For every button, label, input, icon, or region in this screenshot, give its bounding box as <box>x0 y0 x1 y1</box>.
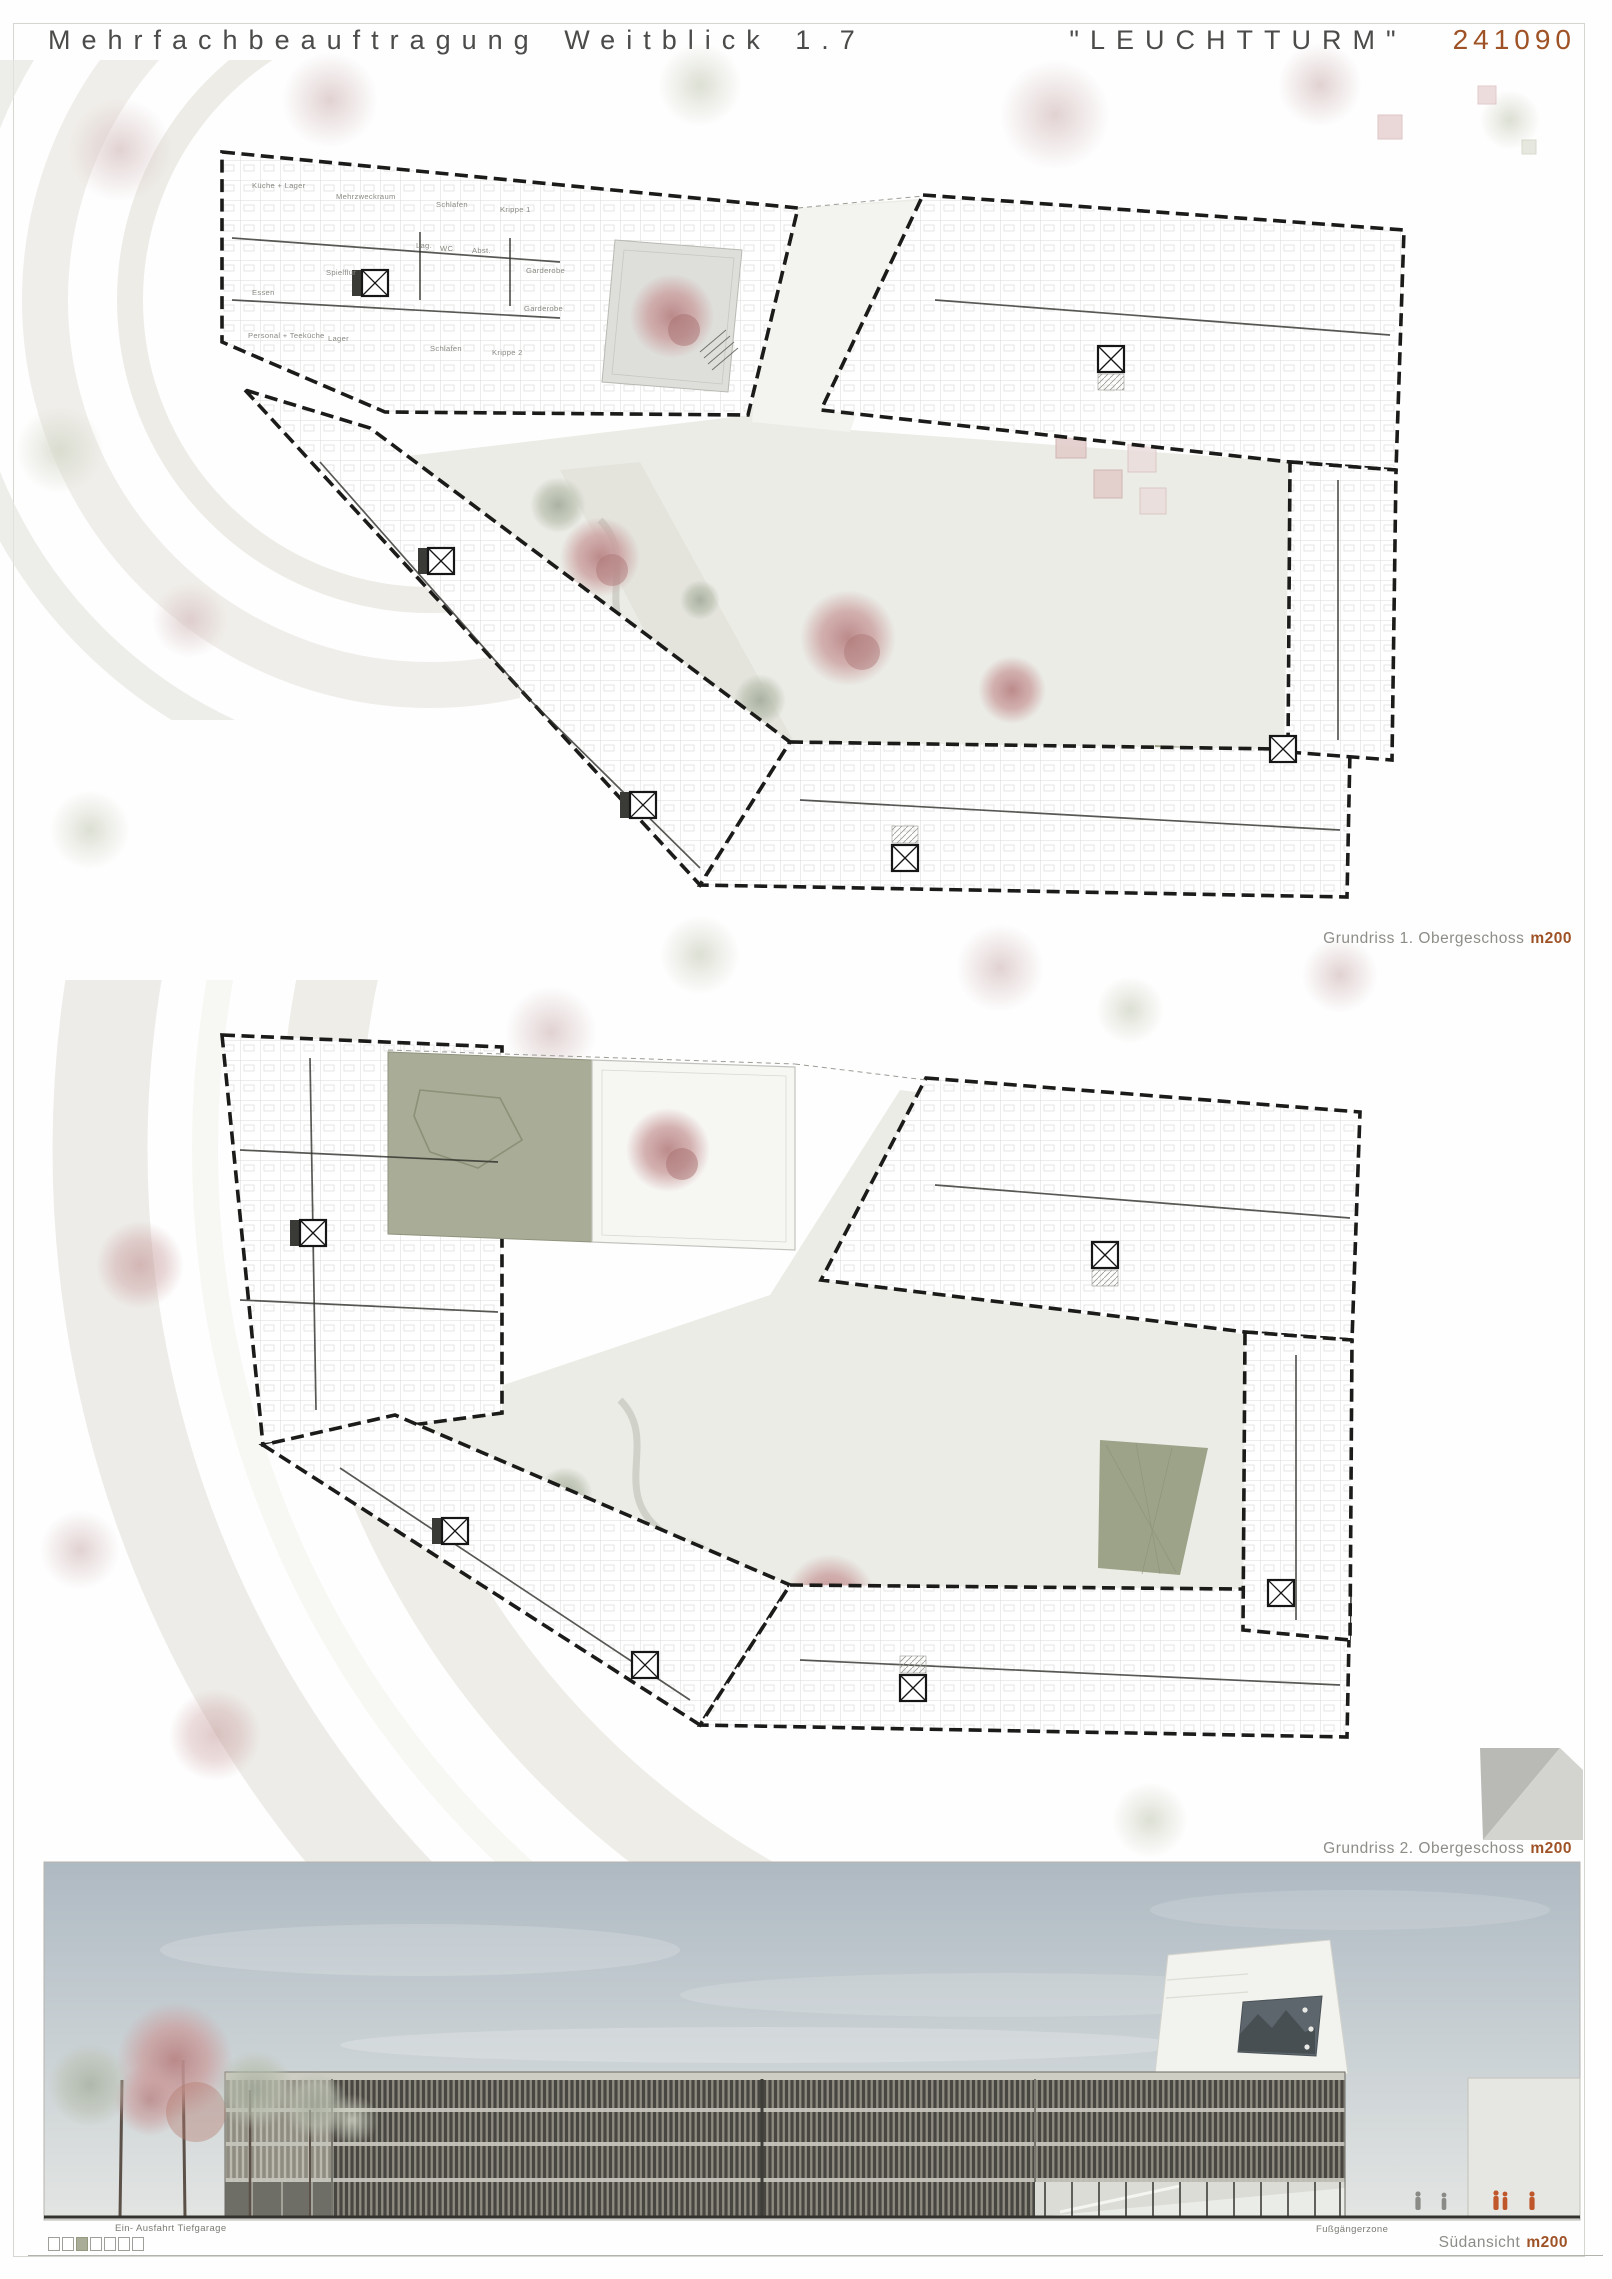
scale-bar-segment <box>90 2237 102 2251</box>
plan2-roof-garden <box>388 1052 795 1250</box>
elevation-drawing <box>44 1862 1580 2220</box>
elevation-tower <box>1155 1940 1348 2074</box>
bottom-rule <box>28 2255 1603 2256</box>
elevation-label-garage: Ein- Ausfahrt Tiefgarage <box>115 2223 227 2234</box>
scale-bar-segment <box>62 2237 74 2251</box>
svg-text:Garderobe: Garderobe <box>524 304 563 313</box>
svg-text:Lager: Lager <box>328 334 349 343</box>
elevation-label-pedestrian: Fußgängerzone <box>1316 2224 1388 2235</box>
svg-text:Garderobe: Garderobe <box>526 266 565 275</box>
elevation-pilotis <box>1035 2182 1345 2217</box>
elevation-scale-label: m200 <box>1526 2234 1568 2251</box>
plan1-kita-courtyard <box>602 240 742 392</box>
svg-text:Mehrzweckraum: Mehrzweckraum <box>336 192 396 201</box>
svg-text:Krippe 2: Krippe 2 <box>492 348 523 357</box>
svg-text:WC: WC <box>440 244 453 253</box>
plan2-caption: Grundriss 2. Obergeschossm200 <box>1323 1840 1572 1858</box>
elevation-neighbour-building <box>1468 2078 1580 2217</box>
plan1-caption-text: Grundriss 1. Obergeschoss <box>1323 930 1524 947</box>
svg-text:Essen: Essen <box>252 288 275 297</box>
svg-text:Lag.: Lag. <box>416 241 432 250</box>
elevation-caption: Südansichtm200 <box>1439 2234 1568 2252</box>
svg-text:Personal + Teeküche: Personal + Teeküche <box>248 331 325 340</box>
board-graphics: Küche + Lager Mehrzweckraum Schlafen Kri… <box>0 0 1612 2279</box>
scale-bar <box>48 2237 144 2251</box>
svg-text:Spielflur: Spielflur <box>326 268 356 277</box>
plan2-caption-text: Grundriss 2. Obergeschoss <box>1323 1840 1524 1857</box>
presentation-board: Mehrfachbeauftragung Weitblick 1.7 "LEUC… <box>0 0 1612 2279</box>
tower-screen <box>1238 1996 1322 2056</box>
plan1-caption: Grundriss 1. Obergeschossm200 <box>1323 930 1572 948</box>
plan2-drawing <box>222 1035 1360 1737</box>
plan1-drawing: Küche + Lager Mehrzweckraum Schlafen Kri… <box>222 152 1404 897</box>
plan2-scale-label: m200 <box>1530 1840 1572 1857</box>
scale-bar-segment <box>104 2237 116 2251</box>
scale-bar-segment-filled <box>76 2237 88 2251</box>
elevation-building <box>225 2072 1345 2217</box>
svg-text:Küche + Lager: Küche + Lager <box>252 181 306 190</box>
scale-bar-segment <box>132 2237 144 2251</box>
svg-text:Schlafen: Schlafen <box>430 344 462 353</box>
scale-bar-segment <box>118 2237 130 2251</box>
scale-bar-segment <box>48 2237 60 2251</box>
svg-text:Krippe 1: Krippe 1 <box>500 205 531 214</box>
plan1-scale-label: m200 <box>1530 930 1572 947</box>
elevation-caption-text: Südansicht <box>1439 2234 1521 2251</box>
svg-text:Schlafen: Schlafen <box>436 200 468 209</box>
svg-text:Abst.: Abst. <box>472 246 491 255</box>
